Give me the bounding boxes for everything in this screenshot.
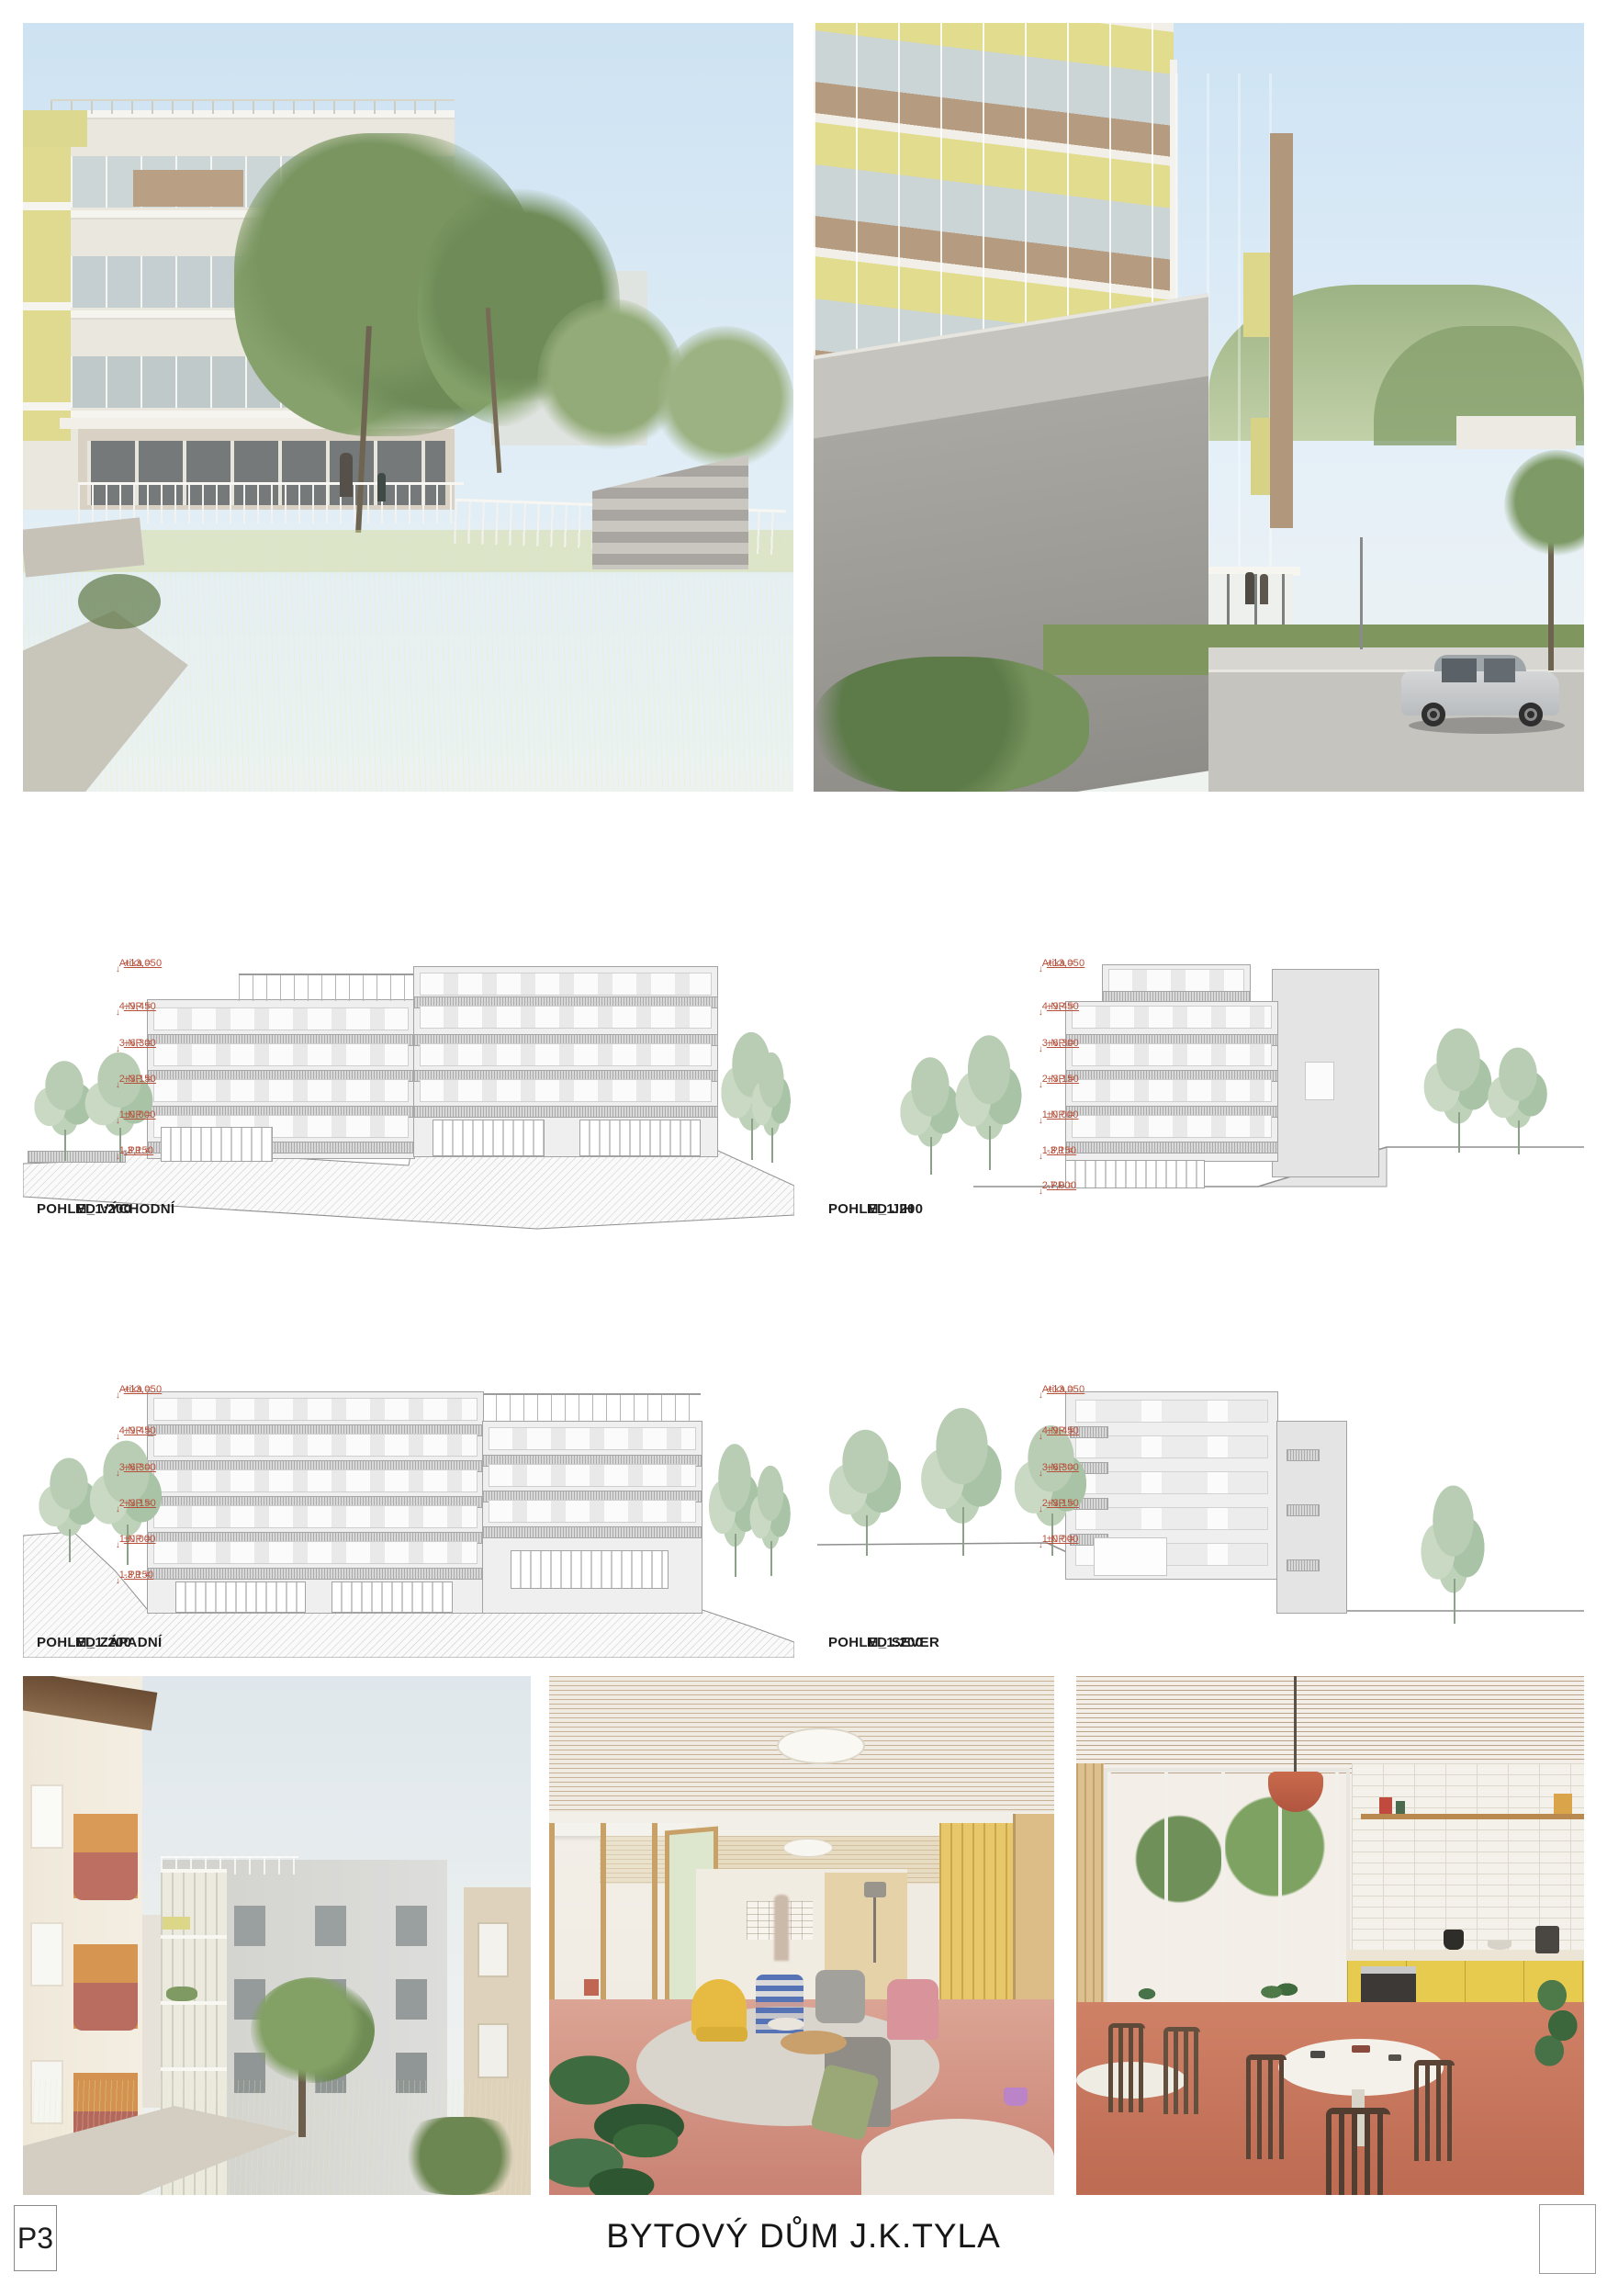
sill-plant [1256,1979,1300,2005]
level-mark: 4.NP =+9,450↓ [119,1425,124,1436]
tree [748,1460,792,1563]
window-row [420,1079,712,1102]
elevation-south: Atika =+13,050↓ 4.NP =+9,450↓ 3.NP =+6,3… [817,923,1584,1231]
window-row [1075,1507,1268,1530]
pink-lounge-chair [887,1979,938,2040]
building-block [482,1421,702,1614]
coffee-machine [1535,1926,1559,1953]
render-exterior-garden-view [23,23,793,792]
bowl [1488,1941,1511,1950]
foreground-bushes [814,657,1089,792]
person [340,453,353,497]
basement-glazing [161,1127,273,1162]
level-annotations: Atika =+13,050↓ 4.NP =+9,450↓ 3.NP =+6,3… [23,1350,124,1658]
level-mark: 1.NP =±0,000↓ [119,1534,124,1545]
window-row [153,1434,478,1457]
yellow-accent [163,1917,190,1930]
down-arrow-icon: ↓ [116,1576,120,1586]
ground-floor-glazing [579,1120,701,1156]
dining-chair [1163,2027,1200,2114]
wood-shelf [1361,1814,1584,1819]
elevation-west: Atika =+13,050↓ 4.NP =+9,450↓ 3.NP =+6,3… [23,1350,794,1658]
level-value: +3,150 [124,1498,156,1509]
ground-floor-glazing [175,1581,306,1613]
kettle [1444,1930,1464,1950]
dining-chair [1414,2060,1455,2161]
watering-can [1004,2088,1028,2106]
down-arrow-icon: ↓ [116,1390,120,1401]
down-arrow-icon: ↓ [1039,1044,1043,1054]
sidewalk [1208,647,1584,671]
level-value: +3,150 [1047,1498,1079,1509]
level-value: -3,150 [124,1570,153,1581]
window-row [153,1007,409,1030]
terrace-chair [584,1979,599,1996]
level-value: +13,050 [1047,1384,1084,1395]
window [1305,1062,1334,1100]
garage-glazing [511,1550,669,1589]
level-mark: 2.NP =+3,150↓ [119,1074,124,1085]
window [32,1786,62,1847]
elevation-scale: M_1:200 [75,1201,131,1217]
yellow-roof-blind [23,110,87,147]
level-mark: Atika =+13,050↓ [119,1384,124,1395]
tree [1419,1479,1488,1611]
down-arrow-icon: ↓ [116,1432,120,1442]
window [479,1924,507,1975]
balcony-band [147,1568,484,1580]
window-row [420,973,712,996]
level-mark: 2.NP =+3,150↓ [1042,1074,1047,1085]
person [1260,574,1268,604]
shelf-books [1379,1797,1392,1814]
balcony-plant [166,1986,197,2001]
down-arrow-icon: ↓ [1039,1152,1043,1162]
tree-canopy [251,1977,375,2083]
level-value: +13,050 [1047,958,1084,969]
window-row [489,1464,696,1487]
level-mark: Atika =+13,050↓ [119,958,124,969]
balcony-wood-edge [1270,133,1293,528]
shelf-jar [1396,1801,1405,1814]
down-arrow-icon: ↓ [116,1044,120,1054]
large-opening [1094,1537,1167,1576]
floor-lamp-shade [864,1882,886,1897]
ground-floor-glazing [433,1120,545,1156]
dining-chair-foreground [1326,2108,1390,2195]
level-mark: Atika =+13,050↓ [1042,958,1047,969]
elevation-scale: M_1:200 [867,1635,923,1650]
level-mark: 3.NP =+6,300↓ [1042,1462,1047,1473]
window-row [489,1500,696,1523]
building-block [1065,1391,1278,1580]
down-arrow-icon: ↓ [1039,1432,1043,1442]
wood-slat-ceiling [1076,1676,1584,1777]
level-value: +9,450 [1047,1001,1079,1012]
level-mark: 1.NP =±0,000↓ [1042,1109,1047,1120]
building-block [413,966,718,1157]
ceiling-lamp [784,1840,832,1856]
person [1245,572,1254,604]
ground-floor-glazing [332,1581,453,1613]
level-value: ±0,000 [124,1109,156,1120]
window-row [153,1398,478,1421]
level-mark: 4.NP =+9,450↓ [1042,1425,1047,1436]
car-window [1484,658,1515,682]
car-wheel [1422,703,1445,726]
level-value: ±0,000 [1047,1109,1079,1120]
level-value: ±0,000 [1047,1534,1079,1545]
window-row [420,1006,712,1029]
shrub [78,574,161,629]
floor-lamp-pole [873,1896,876,1963]
tree [1422,1022,1495,1140]
level-mark: 1.PP =-3,150↓ [119,1145,124,1156]
balcony-front [73,1852,138,1900]
car-window [1442,658,1477,682]
window-row [234,1906,445,1946]
sill-plant [1131,1984,1163,2004]
window-row [1072,1043,1272,1066]
elevation-scale: M_1:200 [867,1201,923,1217]
shelf-box [1554,1794,1572,1814]
dining-chair [1246,2054,1287,2159]
gray-armchair [815,1970,865,2023]
level-value: +13,050 [124,958,162,969]
level-mark: 1.NP =±0,000↓ [1042,1534,1047,1545]
wood-coffee-table [781,2031,847,2054]
window-row [153,1541,478,1564]
level-value: +6,300 [124,1462,156,1473]
side-table [768,2018,804,2031]
window-row [1072,1006,1272,1029]
level-value: -3,150 [124,1145,153,1156]
elevation-scale: M_1:200 [75,1635,131,1650]
basement-glazing [1065,1160,1205,1188]
window-row [153,1469,478,1492]
car-wheel [1519,703,1543,726]
level-annotations: Atika =+13,050↓ 4.NP =+9,450↓ 3.NP =+6,3… [955,923,1047,1231]
level-mark: 3.NP =+6,300↓ [119,1038,124,1049]
window-row [1072,1079,1272,1102]
roof-pergola [51,99,455,114]
balcony-band [1287,1449,1320,1461]
window-row [1075,1400,1268,1423]
down-arrow-icon: ↓ [1039,1080,1043,1090]
level-value: +6,300 [124,1038,156,1049]
down-arrow-icon: ↓ [116,1116,120,1126]
table-items [1310,2051,1325,2058]
stamp-box [1539,2204,1596,2274]
down-arrow-icon: ↓ [1039,1540,1043,1550]
level-value: -7,000 [1047,1180,1076,1191]
tree [1486,1042,1550,1142]
level-mark: 4.NP =+9,450↓ [1042,1001,1047,1012]
down-arrow-icon: ↓ [116,1540,120,1550]
window-row [420,1043,712,1066]
level-mark: 2.PP =-7,000↓ [1042,1180,1047,1191]
level-mark: 4.NP =+9,450↓ [119,1001,124,1012]
penthouse [1102,964,1251,1003]
level-value: -3,150 [1047,1145,1076,1156]
wood-window-back [133,170,243,207]
building-block [1065,1001,1278,1162]
person [774,1895,789,1961]
stair-core-block [1272,969,1379,1177]
balcony-band [1065,1142,1278,1154]
down-arrow-icon: ↓ [116,964,120,974]
down-arrow-icon: ↓ [1039,1390,1043,1401]
level-value: +13,050 [124,1384,162,1395]
window-row [1075,1435,1268,1458]
balcony-band [413,1106,718,1118]
person-child [377,473,386,501]
down-arrow-icon: ↓ [1039,1504,1043,1514]
level-mark: 2.NP =+3,150↓ [119,1498,124,1509]
window [479,2025,507,2077]
level-annotations: Atika =+13,050↓ 4.NP =+9,450↓ 3.NP =+6,3… [23,923,124,1231]
down-arrow-icon: ↓ [1039,1469,1043,1479]
down-arrow-icon: ↓ [1039,1116,1043,1126]
level-mark: 1.PP =-3,150↓ [1042,1145,1047,1156]
render-exterior-street-view [814,23,1584,792]
level-value: +9,450 [124,1425,156,1436]
down-arrow-icon: ↓ [1039,1187,1043,1197]
floor-circle [861,2119,1054,2195]
level-value: ±0,000 [124,1534,156,1545]
balcony-band [1287,1559,1320,1571]
pendant-cord [1294,1676,1297,1773]
large-plant-leaves [586,2108,705,2195]
level-mark: 3.NP =+6,300↓ [1042,1038,1047,1049]
bushes [390,2117,531,2195]
tree-canopy [657,326,793,482]
board-title: BYTOVÝ DŮM J.K.TYLA [0,2217,1607,2256]
down-arrow-icon: ↓ [1039,1007,1043,1018]
level-value: +9,450 [1047,1425,1079,1436]
window-row [1075,1471,1268,1494]
level-annotations: Atika =+13,050↓ 4.NP =+9,450↓ 3.NP =+6,3… [955,1350,1047,1658]
render-interior-common-room [549,1676,1054,2195]
level-value: +3,150 [1047,1074,1079,1085]
window [32,1924,62,1985]
table-items [1352,2045,1370,2053]
dining-chair [1108,2023,1145,2112]
level-mark: 1.PP =-3,150↓ [119,1570,124,1581]
tile-backsplash [1352,1763,1584,1952]
window-row [153,1505,478,1528]
elevation-east: Atika =+13,050↓ 4.NP =+9,450↓ 3.NP =+6,3… [23,923,794,1231]
down-arrow-icon: ↓ [1039,964,1043,974]
render-exterior-courtyard [23,1676,531,2195]
distant-houses [1456,416,1576,449]
level-mark: Atika =+13,050↓ [1042,1384,1047,1395]
render-interior-kitchen [1076,1676,1584,2195]
balcony-band [482,1526,702,1538]
building-block [147,1391,484,1614]
table-items [1388,2054,1401,2061]
side-annex [1276,1421,1347,1614]
level-mark: 1.NP =±0,000↓ [119,1109,124,1120]
roof-pergola [239,974,413,1001]
presentation-board: Atika =+13,050↓ 4.NP =+9,450↓ 3.NP =+6,3… [0,0,1607,2296]
down-arrow-icon: ↓ [116,1080,120,1090]
tall-plant [1531,1970,1584,2071]
level-value: +6,300 [1047,1462,1079,1473]
curtain [1076,1763,1104,2020]
window-row [1072,1115,1272,1138]
yellow-panel-column [23,110,71,441]
window-row [1108,969,1244,992]
level-mark: 3.NP =+6,300↓ [119,1462,124,1473]
down-arrow-icon: ↓ [116,1504,120,1514]
level-value: +3,150 [124,1074,156,1085]
balcony-band [1287,1504,1320,1516]
down-arrow-icon: ↓ [116,1469,120,1479]
window-row [489,1427,696,1450]
window-row [153,1079,409,1102]
tree [826,1424,905,1543]
level-value: +9,450 [124,1001,156,1012]
window-row [153,1043,409,1066]
level-value: +6,300 [1047,1038,1079,1049]
down-arrow-icon: ↓ [116,1007,120,1018]
elevation-north: Atika =+13,050↓ 4.NP =+9,450↓ 3.NP =+6,3… [817,1350,1584,1658]
light-pole [1360,537,1363,649]
down-arrow-icon: ↓ [116,1152,120,1162]
balcony-front [73,1983,138,2031]
tree [750,1047,792,1150]
roof-pergola [482,1393,701,1423]
level-mark: 2.NP =+3,150↓ [1042,1498,1047,1509]
ceiling-lamp [779,1729,863,1762]
